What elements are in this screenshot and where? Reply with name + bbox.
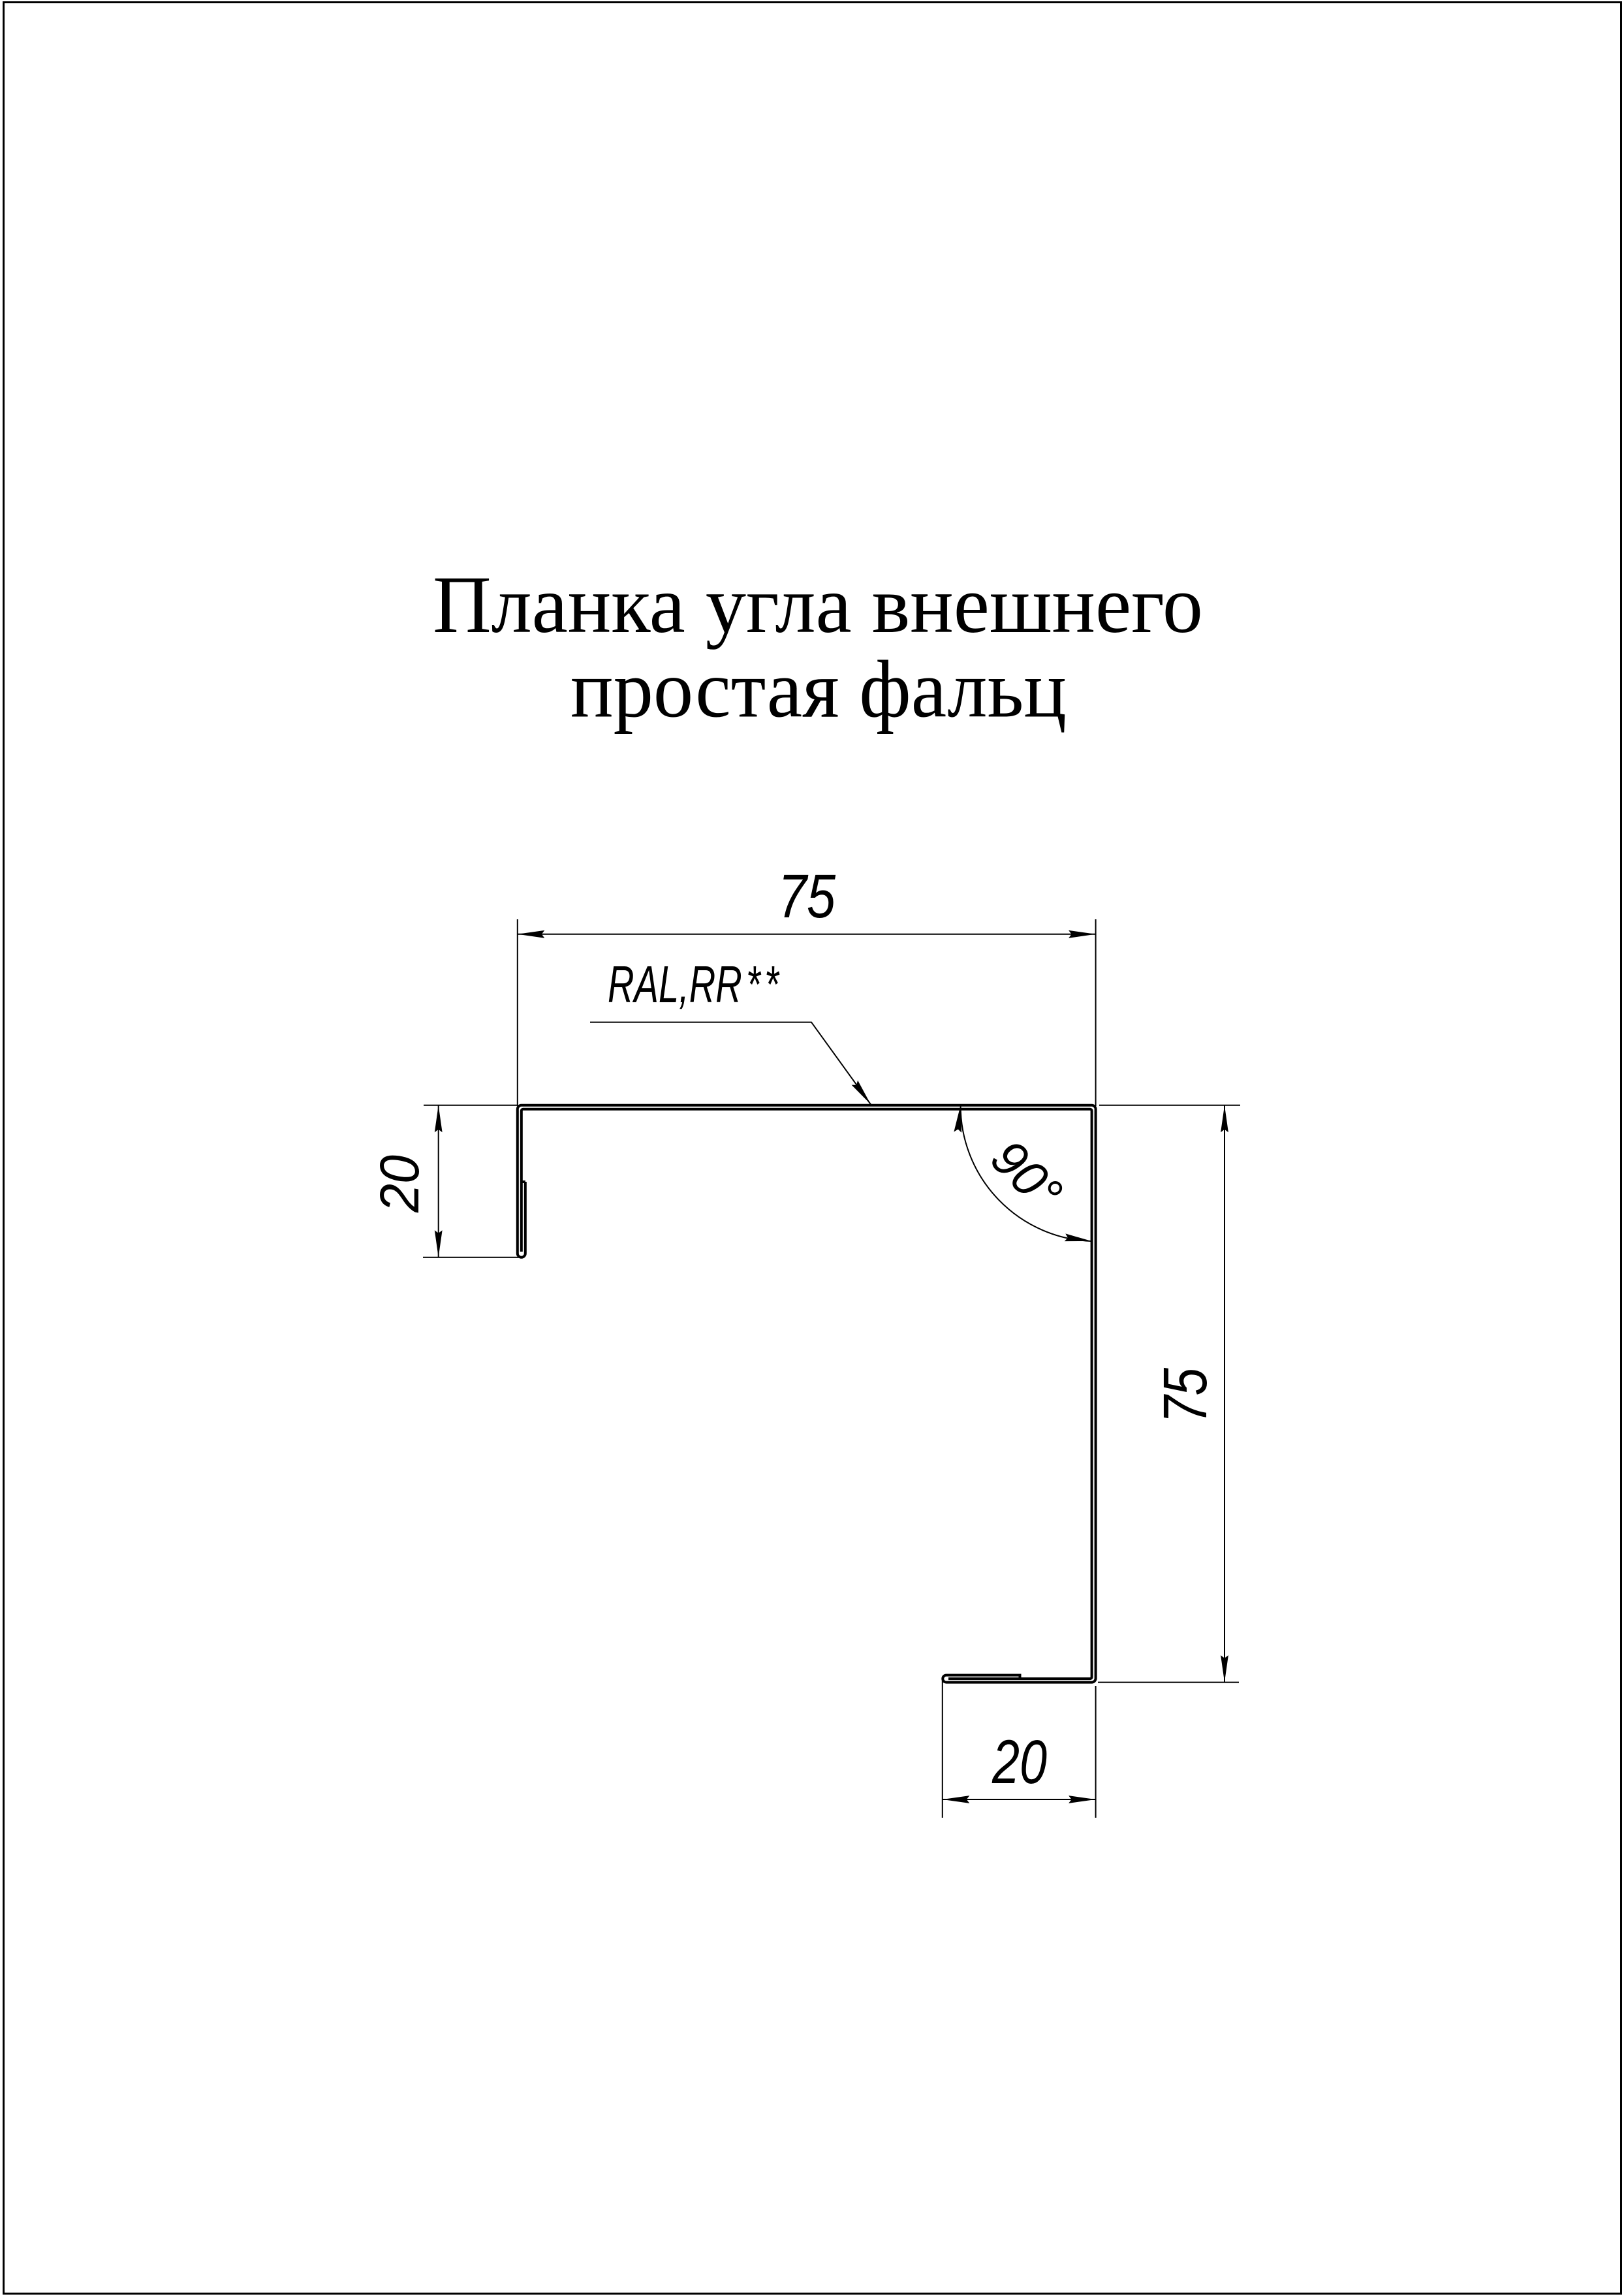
svg-text:простая фальц: простая фальц — [570, 645, 1067, 735]
svg-text:75: 75 — [778, 862, 836, 931]
svg-text:20: 20 — [369, 1155, 430, 1213]
svg-text:20: 20 — [992, 1728, 1047, 1797]
svg-text:Планка угла внешнего: Планка угла внешнего — [433, 560, 1203, 650]
svg-text:75: 75 — [1151, 1367, 1220, 1423]
svg-text:RAL,RR**: RAL,RR** — [608, 955, 780, 1013]
